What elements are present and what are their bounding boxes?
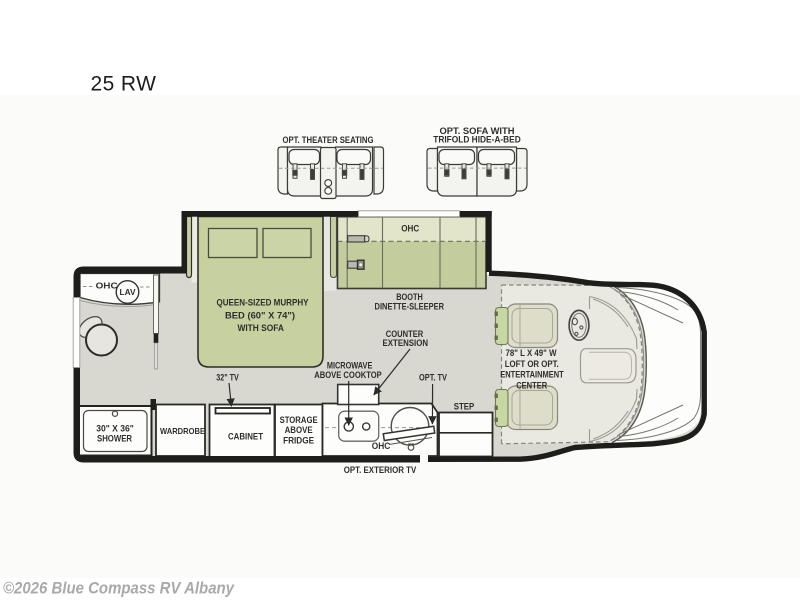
svg-text:ENTERTAINMENT: ENTERTAINMENT — [500, 370, 564, 380]
svg-text:QUEEN-SIZED MURPHY: QUEEN-SIZED MURPHY — [217, 298, 309, 308]
svg-text:FRIDGE: FRIDGE — [283, 436, 314, 446]
svg-text:ABOVE COOKTOP: ABOVE COOKTOP — [314, 370, 382, 380]
svg-text:ABOVE: ABOVE — [285, 425, 313, 435]
svg-text:78" L X 49" W: 78" L X 49" W — [506, 348, 557, 358]
svg-text:OHC: OHC — [372, 441, 391, 451]
svg-text:32" TV: 32" TV — [216, 373, 239, 383]
svg-text:STORAGE: STORAGE — [280, 415, 318, 425]
svg-text:WARDROBE: WARDROBE — [160, 426, 205, 436]
svg-text:DINETTE-SLEEPER: DINETTE-SLEEPER — [375, 302, 445, 312]
svg-text:OPT. TV: OPT. TV — [419, 373, 447, 383]
svg-text:EXTENSION: EXTENSION — [383, 338, 429, 348]
svg-text:CENTER: CENTER — [516, 380, 547, 390]
svg-text:©2026 Blue Compass RV Albany: ©2026 Blue Compass RV Albany — [3, 580, 235, 598]
svg-text:LOFT OR OPT.: LOFT OR OPT. — [505, 359, 559, 369]
svg-text:OHC: OHC — [96, 281, 118, 291]
svg-text:LAV: LAV — [120, 287, 136, 297]
svg-text:CABINET: CABINET — [228, 432, 263, 442]
svg-text:30" X 36": 30" X 36" — [96, 424, 134, 434]
svg-text:SHOWER: SHOWER — [97, 434, 132, 444]
svg-text:OPT. THEATER SEATING: OPT. THEATER SEATING — [283, 135, 374, 145]
svg-text:25 RW: 25 RW — [91, 73, 157, 96]
svg-text:OPT. EXTERIOR TV: OPT. EXTERIOR TV — [344, 465, 417, 475]
svg-text:OHC: OHC — [401, 224, 419, 234]
svg-text:BED (60" X 74"): BED (60" X 74") — [225, 311, 295, 321]
svg-text:TRIFOLD HIDE-A-BED: TRIFOLD HIDE-A-BED — [433, 135, 521, 145]
svg-text:STEP: STEP — [454, 402, 475, 412]
svg-text:BOOTH: BOOTH — [396, 292, 423, 302]
svg-text:WITH SOFA: WITH SOFA — [237, 323, 284, 333]
